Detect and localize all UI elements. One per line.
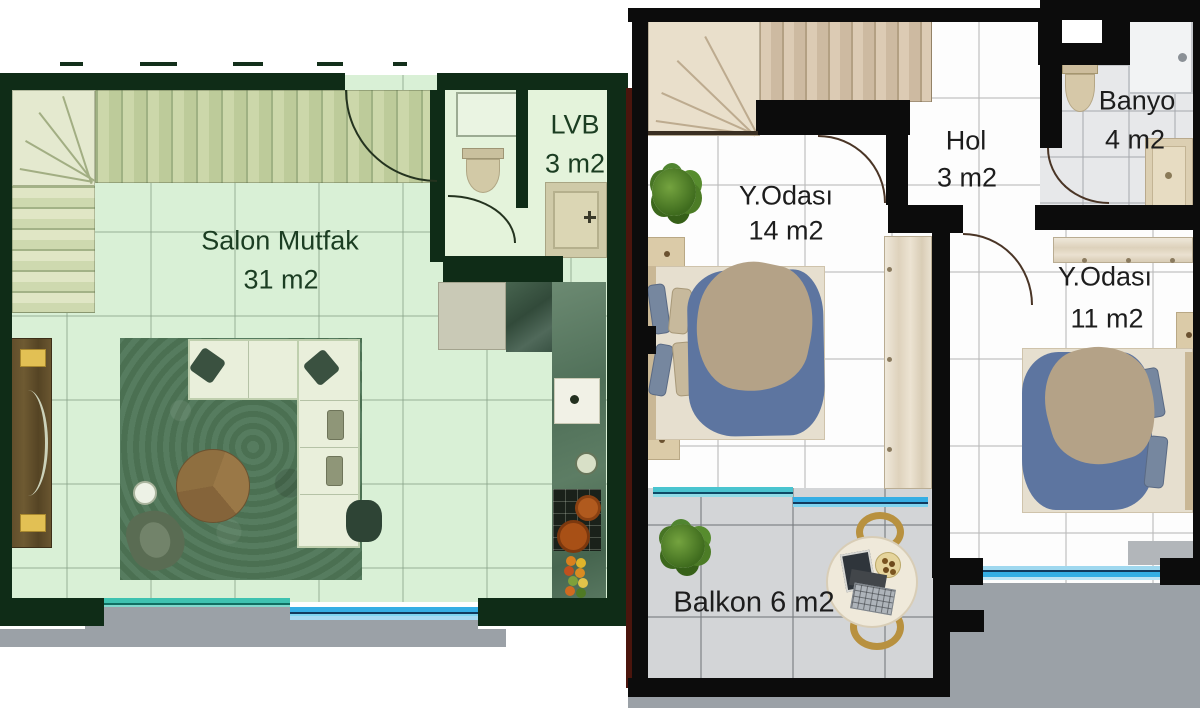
nightstand-knob — [664, 251, 670, 257]
wardrobe-knob — [887, 447, 892, 452]
sofa-pillow — [327, 410, 344, 440]
vanity-faucet — [1165, 172, 1172, 179]
cooking-pot — [575, 495, 601, 521]
room-area-bedroom-11: 11 m2 — [1070, 304, 1143, 335]
kitchen-counter-green-marble — [552, 282, 606, 600]
nightstand — [647, 237, 685, 269]
balkon-area-text: 6 m2 — [770, 587, 834, 619]
window-blue — [290, 607, 478, 616]
balcony-window-right — [793, 497, 928, 507]
edge-strip — [626, 88, 632, 688]
nightstand-knob — [1186, 332, 1192, 338]
room-label-bedroom-11: Y.Odası — [1058, 262, 1152, 293]
wall — [933, 498, 950, 697]
shower-unit-inner — [553, 191, 599, 249]
wall — [756, 100, 910, 135]
potted-plant — [652, 168, 696, 216]
balcony-window-left — [653, 487, 793, 497]
kitchen-counter-dark-marble — [506, 282, 552, 352]
shower-handle — [588, 211, 591, 223]
sofa-cushion-line — [300, 494, 358, 495]
wall — [478, 598, 608, 626]
wall — [0, 73, 345, 90]
balkon-label-text: Balkon — [673, 587, 762, 619]
wardrobe-knob — [887, 267, 892, 272]
window-teal — [104, 598, 290, 607]
wall — [0, 598, 104, 626]
room-label-banyo: Banyo — [1099, 86, 1176, 117]
stair-edge — [648, 131, 758, 135]
outline-dash — [140, 62, 177, 66]
outline-dash — [317, 62, 343, 66]
wall — [0, 73, 12, 626]
wall — [886, 135, 908, 205]
room-area-bedroom-14: 14 m2 — [748, 216, 823, 247]
sofa-cushion-line — [300, 400, 358, 401]
room-label-hol: Hol — [946, 126, 987, 157]
tv-unit-handle — [20, 349, 46, 367]
wall — [950, 558, 983, 585]
wall — [516, 90, 528, 208]
kitchen-plate — [575, 452, 598, 475]
wall — [888, 205, 963, 233]
wall — [437, 73, 628, 90]
wall-window-notch — [1062, 20, 1102, 43]
sofa-pillow — [326, 456, 343, 486]
ground-strip — [0, 629, 506, 647]
bedroom-11-window — [983, 566, 1160, 580]
room-label-salon: Salon Mutfak — [201, 226, 359, 257]
sofa-cushion-line — [300, 447, 358, 448]
kitchen-counter-light — [438, 282, 506, 350]
wall — [1193, 18, 1200, 585]
cookie — [882, 558, 888, 564]
room-area-lvb: 3 m2 — [545, 149, 605, 180]
window-blue-sill — [290, 616, 478, 620]
wardrobe-14 — [884, 236, 932, 489]
staircase-upper-flight — [758, 18, 932, 102]
pouf — [346, 500, 382, 542]
cooking-pot — [557, 520, 590, 553]
wall — [607, 73, 628, 626]
outside-area — [950, 583, 1200, 697]
side-table — [133, 481, 157, 505]
wall — [1160, 558, 1200, 585]
wall — [628, 8, 1048, 22]
room-label-lvb: LVB — [550, 110, 599, 141]
wall — [1040, 63, 1062, 148]
room-label-balkon: Balkon 6 m2 — [673, 587, 834, 620]
wall — [628, 678, 950, 697]
sofa-cushion-line — [248, 341, 249, 398]
outline-dash — [393, 62, 407, 66]
room-area-banyo: 4 m2 — [1105, 125, 1165, 156]
wall — [1035, 205, 1200, 230]
wardrobe-knob — [1170, 258, 1175, 263]
outline-dash — [233, 62, 263, 66]
outline-dash — [60, 62, 83, 66]
coffee-table — [176, 449, 250, 523]
shower-drain — [1178, 53, 1187, 62]
room-label-bedroom-14: Y.Odası — [739, 181, 833, 212]
bed-11-headboard — [1185, 352, 1193, 510]
sink-drain — [570, 395, 579, 404]
potted-plant — [661, 524, 705, 568]
wardrobe-knob — [887, 357, 892, 362]
tv-unit-handle — [20, 514, 46, 532]
staircase-lower-flight2 — [12, 185, 95, 313]
room-area-hol: 3 m2 — [937, 163, 997, 194]
wardrobe-11 — [1053, 237, 1193, 263]
wall — [948, 610, 984, 632]
wall — [632, 326, 656, 354]
lvb-cabinet — [456, 92, 518, 137]
fruit-basket — [566, 556, 576, 566]
floor-plan-canvas: Salon Mutfak 31 m2 LVB 3 m2 — [0, 0, 1200, 708]
wall — [443, 256, 563, 282]
room-area-salon: 31 m2 — [243, 265, 318, 296]
toilet-tank — [462, 148, 504, 159]
